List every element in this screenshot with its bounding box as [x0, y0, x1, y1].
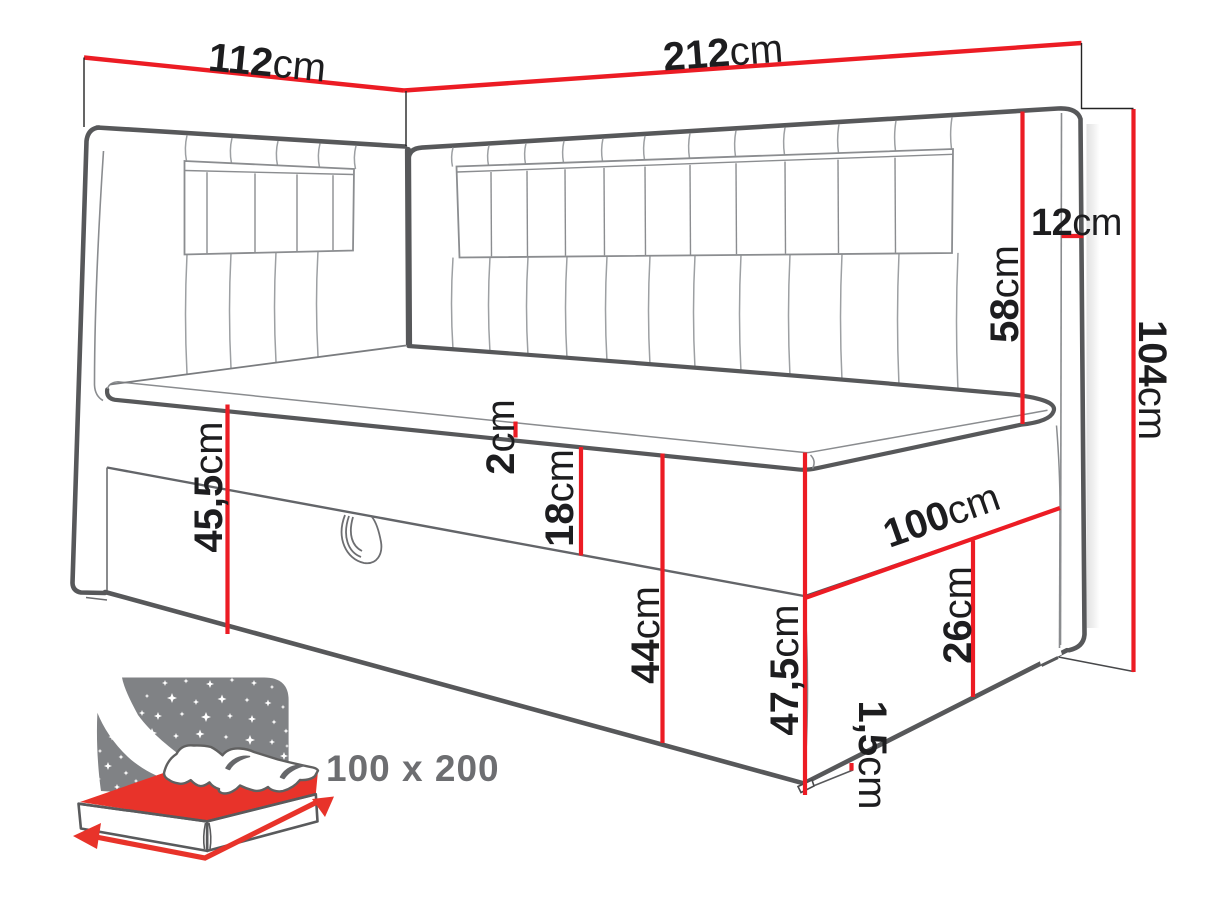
svg-text:1,5cm: 1,5cm [850, 701, 894, 810]
svg-text:44cm: 44cm [624, 586, 668, 684]
svg-text:45,5cm: 45,5cm [187, 421, 231, 552]
svg-text:47,5cm: 47,5cm [763, 604, 807, 735]
svg-text:100 x 200: 100 x 200 [326, 748, 500, 789]
svg-text:58cm: 58cm [983, 245, 1027, 343]
svg-text:12cm: 12cm [1031, 202, 1122, 244]
svg-text:104cm: 104cm [1130, 320, 1174, 440]
svg-text:18cm: 18cm [538, 449, 582, 547]
svg-text:2cm: 2cm [479, 399, 523, 475]
svg-text:26cm: 26cm [936, 566, 980, 664]
svg-text:212cm: 212cm [662, 27, 785, 80]
